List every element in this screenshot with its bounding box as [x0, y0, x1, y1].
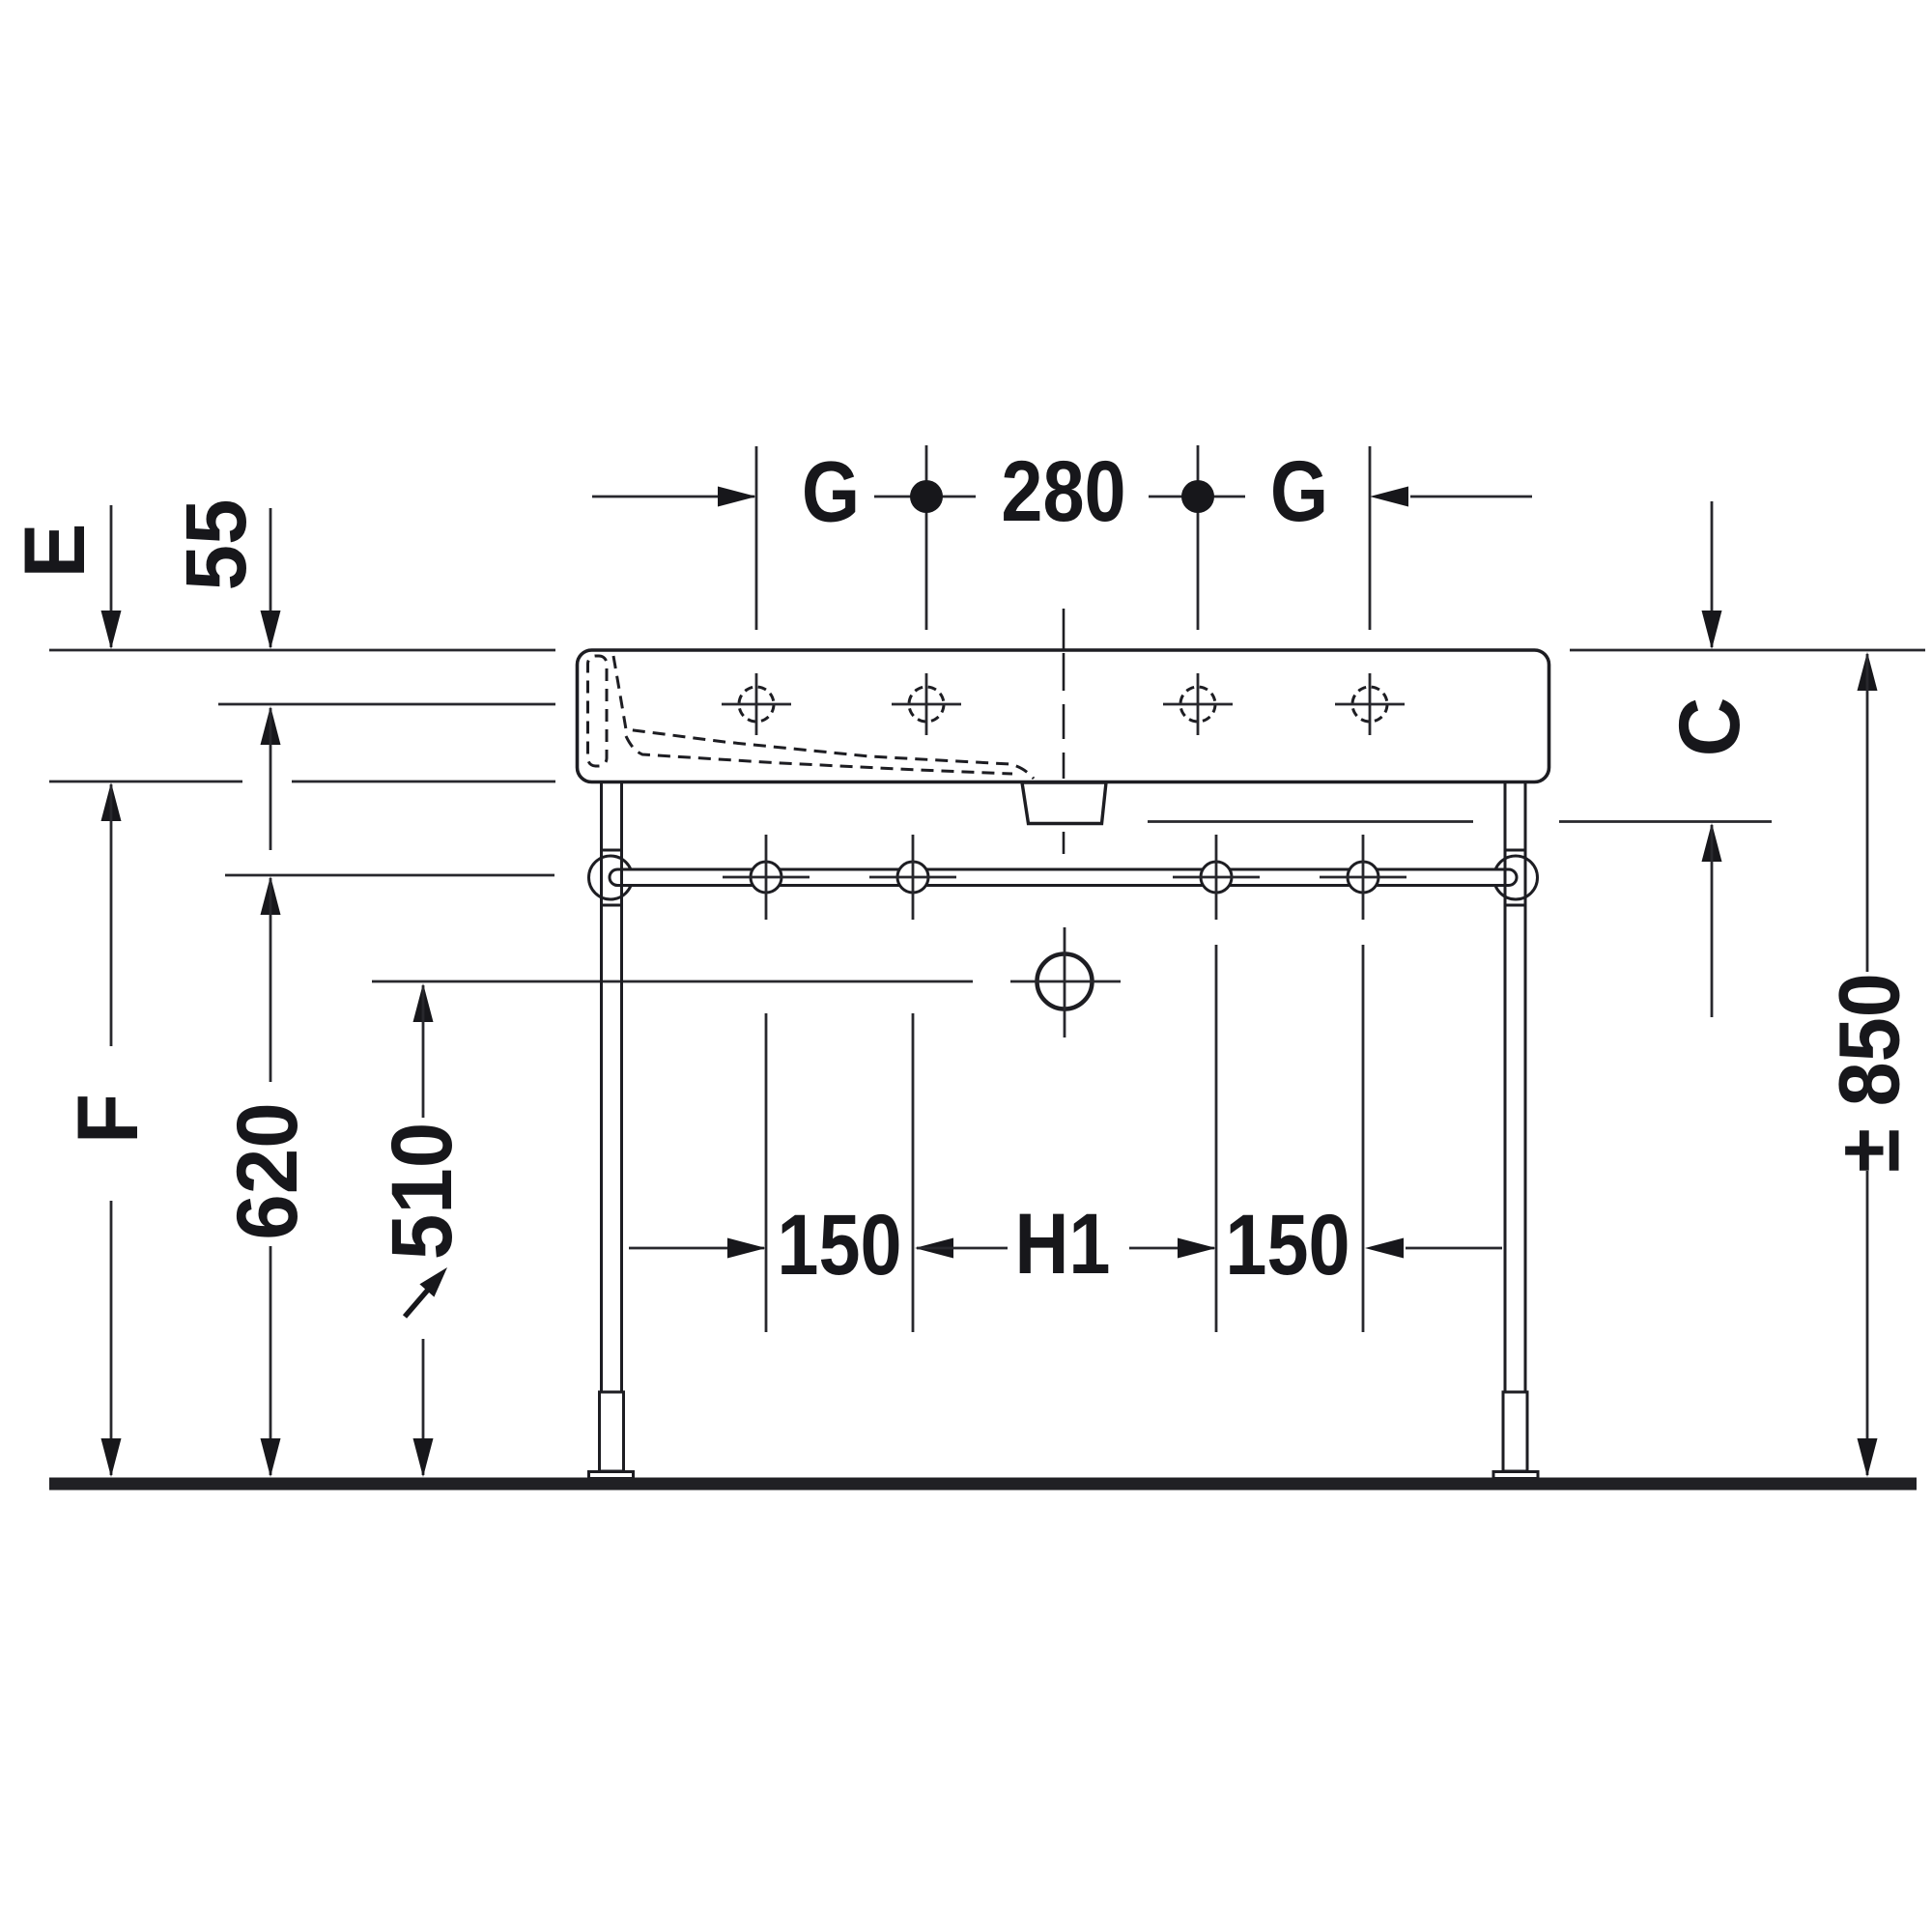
svg-text:280: 280 — [1001, 442, 1125, 539]
svg-text:55: 55 — [168, 498, 264, 590]
svg-text:F: F — [60, 1094, 156, 1144]
svg-text:C: C — [1662, 697, 1757, 757]
svg-text:H1: H1 — [1015, 1195, 1111, 1292]
svg-text:G: G — [802, 442, 860, 539]
svg-text:± 850: ± 850 — [1822, 973, 1918, 1173]
svg-text:510: 510 — [374, 1122, 469, 1261]
svg-text:G: G — [1270, 442, 1328, 539]
svg-text:150: 150 — [1225, 1196, 1350, 1293]
svg-text:E: E — [7, 524, 102, 579]
svg-text:620: 620 — [219, 1102, 315, 1240]
svg-text:150: 150 — [777, 1196, 901, 1293]
